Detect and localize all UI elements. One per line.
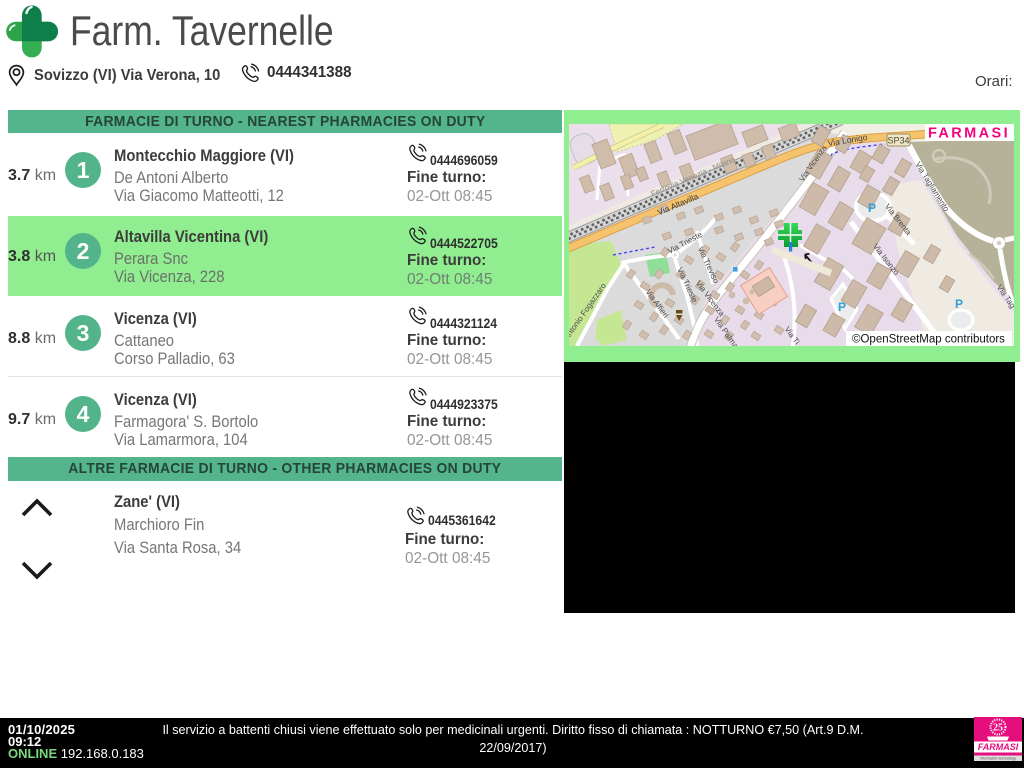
- svg-text:FARMASI: FARMASI: [978, 742, 1019, 752]
- svg-text:P: P: [868, 201, 876, 215]
- svg-text:information technology: information technology: [980, 757, 1016, 761]
- svg-text:FARMASI: FARMASI: [928, 126, 1010, 142]
- svg-text:P: P: [955, 297, 963, 311]
- svg-text:©OpenStreetMap contributors: ©OpenStreetMap contributors: [852, 334, 1005, 346]
- svg-text:SP34: SP34: [887, 136, 909, 146]
- svg-text:P: P: [838, 300, 846, 314]
- svg-text:25: 25: [993, 723, 1003, 734]
